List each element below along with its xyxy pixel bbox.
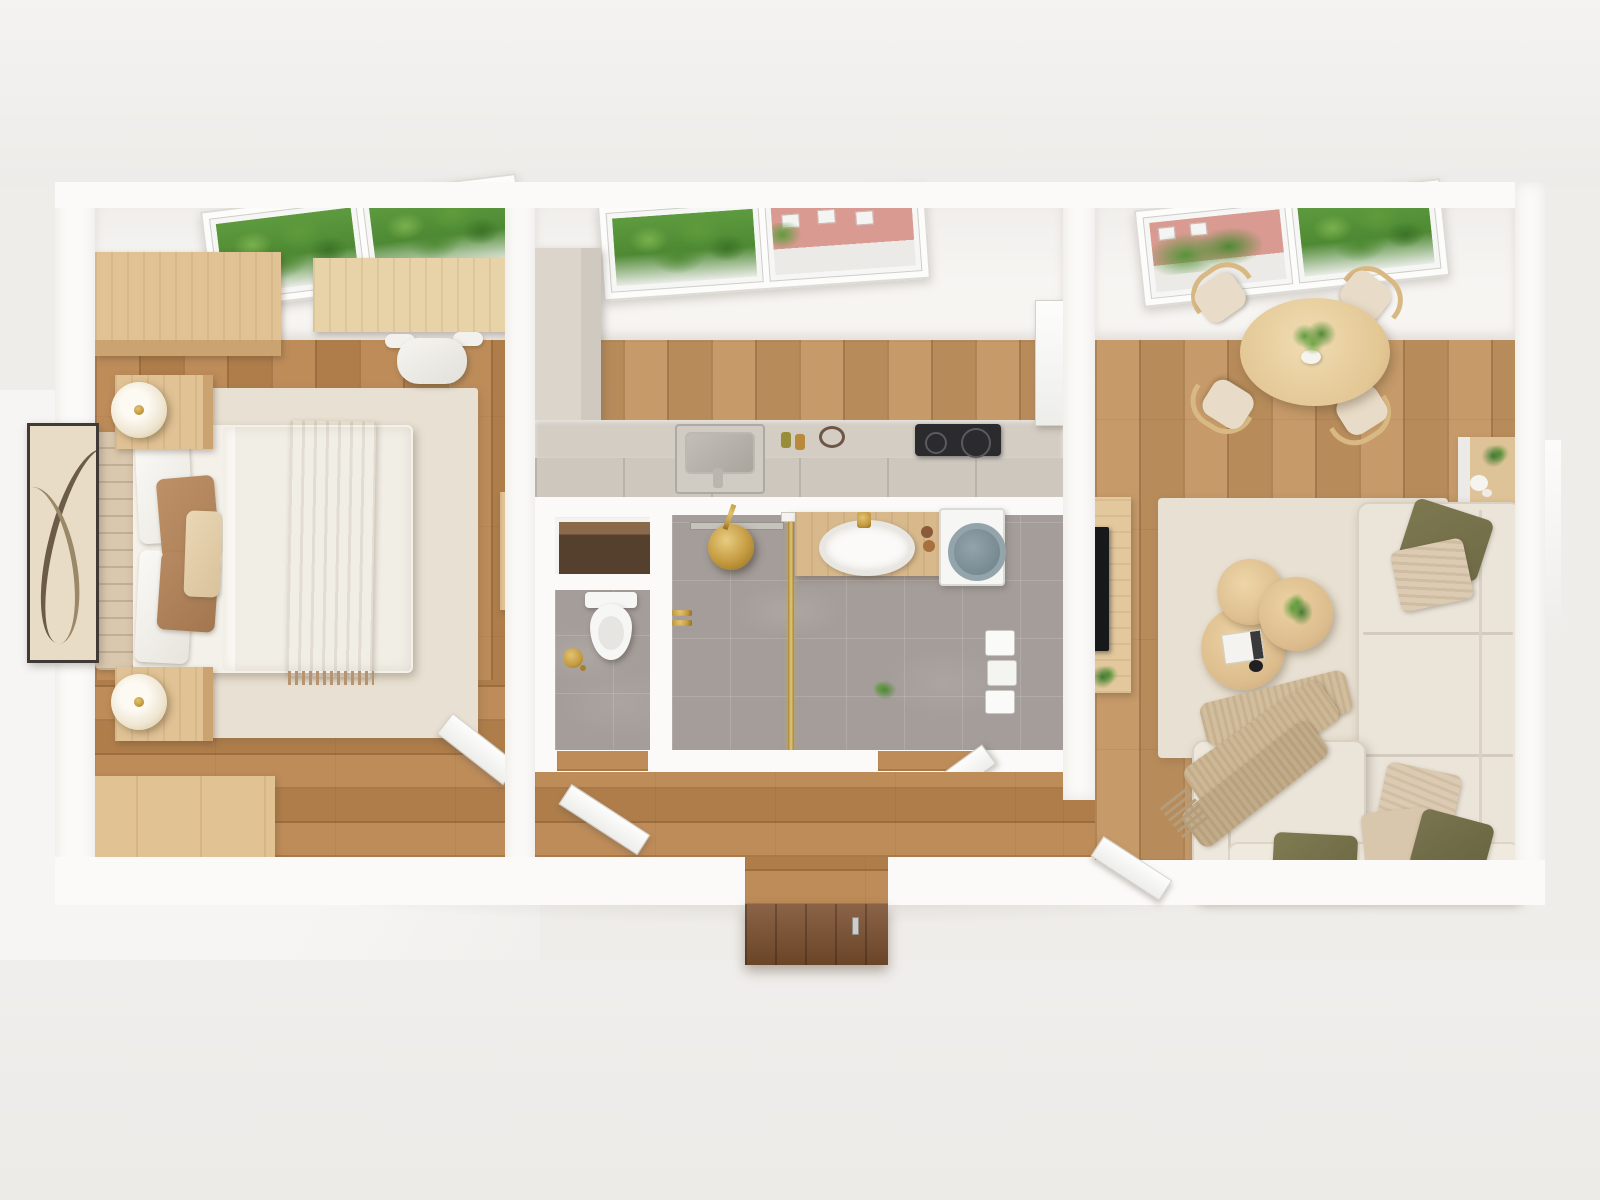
- valve-bar: [672, 610, 692, 616]
- throw-fringe: [288, 671, 374, 685]
- bg-bottom: [0, 960, 1600, 1200]
- toilet-brush-gold: [563, 648, 583, 668]
- induction-cooktop: [915, 424, 1001, 456]
- bathroom-bottom-wall: [672, 750, 1063, 772]
- building-greenery: [766, 221, 808, 254]
- towel: [985, 690, 1015, 714]
- tan-throw: [286, 420, 376, 677]
- towel: [987, 660, 1017, 686]
- entrance-door-handle: [853, 918, 858, 934]
- bottom-wall-left-of-entry: [505, 857, 745, 905]
- bedroom-desk: [313, 258, 507, 332]
- dining-table-plant: [1285, 318, 1341, 358]
- shelf-decor: [1470, 475, 1488, 491]
- washing-machine: [939, 508, 1005, 586]
- cooktop-burner: [961, 428, 991, 458]
- rain-shower-head: [708, 524, 754, 570]
- skylight-pane: [607, 203, 763, 291]
- shower-valve-gold: [670, 606, 696, 632]
- wall-shelf: [1458, 437, 1515, 509]
- entrance-door-dark-wood: [745, 904, 888, 965]
- building-window: [817, 209, 836, 224]
- bedroom-wall-top: [55, 182, 535, 208]
- headboard: [95, 432, 133, 670]
- sofa-cushion-seam: [1363, 632, 1513, 635]
- lamp-finial: [134, 697, 144, 707]
- living-wall-top: [1063, 182, 1545, 208]
- chair-seat: [397, 338, 467, 384]
- small-beige-pillow: [184, 510, 223, 597]
- toilet: [583, 592, 639, 666]
- floorplan-canvas: [0, 0, 1600, 1200]
- washer-door: [948, 523, 1006, 581]
- bedroom: [55, 182, 535, 905]
- mid-wall-left: [505, 182, 535, 905]
- living-wall-right: [1515, 182, 1545, 905]
- bedroom-wall-bottom: [55, 857, 535, 905]
- towel: [985, 630, 1015, 656]
- coffee-table-bowl: [1249, 660, 1263, 672]
- wc-storage-niche: [555, 518, 658, 582]
- wc-shower-divider-wall: [650, 497, 672, 775]
- toilet-seat-inner: [598, 616, 624, 650]
- double-bed: [133, 425, 413, 673]
- lamp-finial: [134, 405, 144, 415]
- wc-niche-band: [555, 574, 650, 590]
- bathroom-plant: [873, 680, 897, 700]
- wall-art: [27, 423, 99, 663]
- building-window: [855, 210, 874, 225]
- living-room: [1063, 182, 1545, 905]
- towel-rack: [985, 630, 1017, 716]
- basin-faucet-gold: [857, 512, 871, 528]
- counter-decor-ring: [819, 426, 845, 448]
- counter-cabinet-fronts: [535, 458, 1063, 498]
- counter-decor-bottles: [781, 432, 791, 448]
- valve-bar: [672, 620, 692, 626]
- kitchen-sink: [675, 424, 765, 494]
- wc-threshold: [557, 751, 648, 771]
- entry-niche-floor: [745, 857, 888, 905]
- vanity-basin: [819, 520, 915, 576]
- shelf-plant: [1480, 443, 1510, 469]
- office-chair: [377, 324, 485, 398]
- outer-wall-highlight-right: [1545, 440, 1561, 640]
- coffee-table-plant: [1275, 590, 1319, 630]
- bedroom-wardrobe: [95, 252, 281, 356]
- vanity-cups: [921, 526, 933, 538]
- bg-top-light: [0, 0, 1600, 186]
- sofa-cushion-seam: [1363, 754, 1513, 757]
- fringed-throw: [1171, 676, 1356, 851]
- glass-partition-gold: [788, 515, 794, 752]
- table-lamp: [111, 674, 167, 730]
- table-lamp: [111, 382, 167, 438]
- midsection: [505, 182, 1095, 967]
- kitchen-tall-cabinet: [535, 248, 601, 426]
- kitchen-door-leaf-open: [1035, 300, 1065, 426]
- cooktop-burner: [925, 432, 947, 454]
- bench-top: [72, 776, 275, 858]
- wc-wall-left: [535, 517, 555, 775]
- sink-faucet: [713, 468, 723, 488]
- mid-wall-top: [505, 182, 1063, 208]
- kitchen-counter: [535, 420, 1063, 498]
- living-wall-left: [1063, 182, 1095, 800]
